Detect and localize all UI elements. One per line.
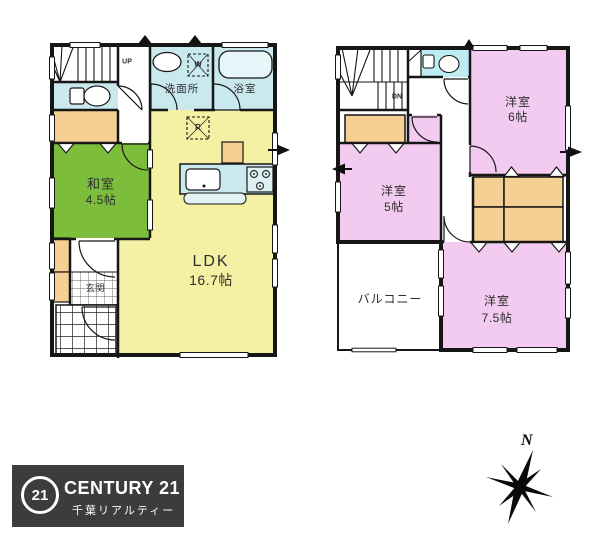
century21-logo: 21 CENTURY 21 千葉リアルティー [12, 465, 184, 527]
century21-circle-number: 21 [32, 487, 49, 504]
century21-circle-icon: 21 [21, 476, 59, 514]
japanese-room-size: 4.5帖 [86, 194, 117, 206]
compass-north-label: N [521, 432, 533, 450]
fridge-mark-label: R [195, 124, 201, 132]
bathtub [219, 51, 272, 78]
bedroom5-label: 洋室 [381, 185, 407, 197]
floorplan-drawing [0, 0, 600, 538]
bedroom6-size: 6帖 [508, 111, 528, 123]
bedroom75-size: 7.5帖 [482, 312, 513, 324]
bedroom6-label: 洋室 [505, 96, 531, 108]
stairs-1f [52, 45, 110, 82]
balcony-label: バルコニー [358, 293, 423, 305]
washer-mark-label: W [194, 61, 202, 69]
ldk-size: 16.7帖 [189, 273, 233, 287]
bathroom-label: 浴室 [234, 84, 257, 95]
century21-company-text: 千葉リアルティー [72, 502, 175, 518]
bedroom75-label: 洋室 [484, 295, 510, 307]
toilet-1f [70, 86, 110, 106]
washroom-label: 洗面所 [165, 84, 200, 95]
floorplan-page: UP 洗面所 浴室 W R 和室 4.5帖 LDK 16.7帖 玄関 DN 洋室… [0, 0, 600, 538]
compass-rose [486, 450, 553, 524]
entrance-label: 玄関 [85, 284, 104, 294]
washbasin-1f [153, 53, 181, 72]
japanese-room-label: 和室 [87, 178, 115, 191]
bedroom5-size: 5帖 [384, 201, 404, 213]
stairs-up-label: UP [122, 59, 132, 66]
stairs-down-label: DN [392, 94, 402, 101]
century21-brand-text: CENTURY 21 [64, 478, 180, 499]
stairs-2f [338, 48, 408, 110]
ldk-label: LDK [192, 254, 229, 270]
